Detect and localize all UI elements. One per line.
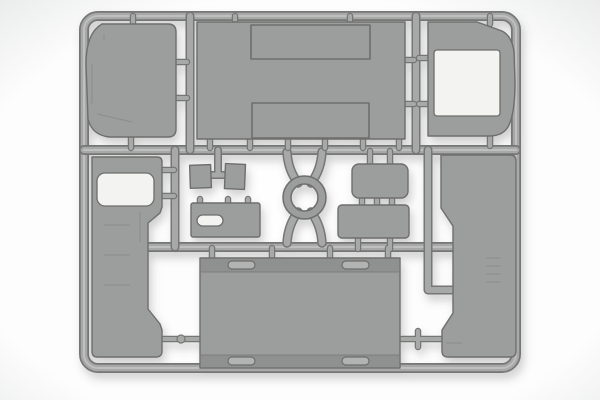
part-rounded-plate-upper: [352, 164, 408, 198]
part-top-right-panel: [428, 22, 515, 136]
raised-hatch-upper: [251, 25, 370, 59]
sprue-photo: Product photograph of a light-gray injec…: [0, 0, 600, 400]
photo-canvas: Product photograph of a light-gray injec…: [0, 0, 600, 400]
part-top-center-panel: [197, 22, 405, 139]
window-opening: [97, 173, 154, 206]
pin-knob: [177, 335, 185, 343]
window-opening: [434, 50, 500, 116]
handle-recess: [342, 261, 369, 269]
slot-opening: [197, 215, 223, 226]
part-top-left-panel: [86, 24, 176, 137]
part-small-block-b: [224, 164, 245, 190]
part-slot-plate: [191, 203, 260, 237]
handle-recess: [228, 357, 255, 365]
part-small-block-a: [190, 165, 212, 189]
part-bottom-panel: [200, 258, 400, 368]
part-rounded-plate-lower: [338, 205, 409, 238]
handle-recess: [342, 357, 369, 365]
handle-recess: [228, 261, 255, 269]
raised-hatch-lower: [252, 103, 369, 138]
